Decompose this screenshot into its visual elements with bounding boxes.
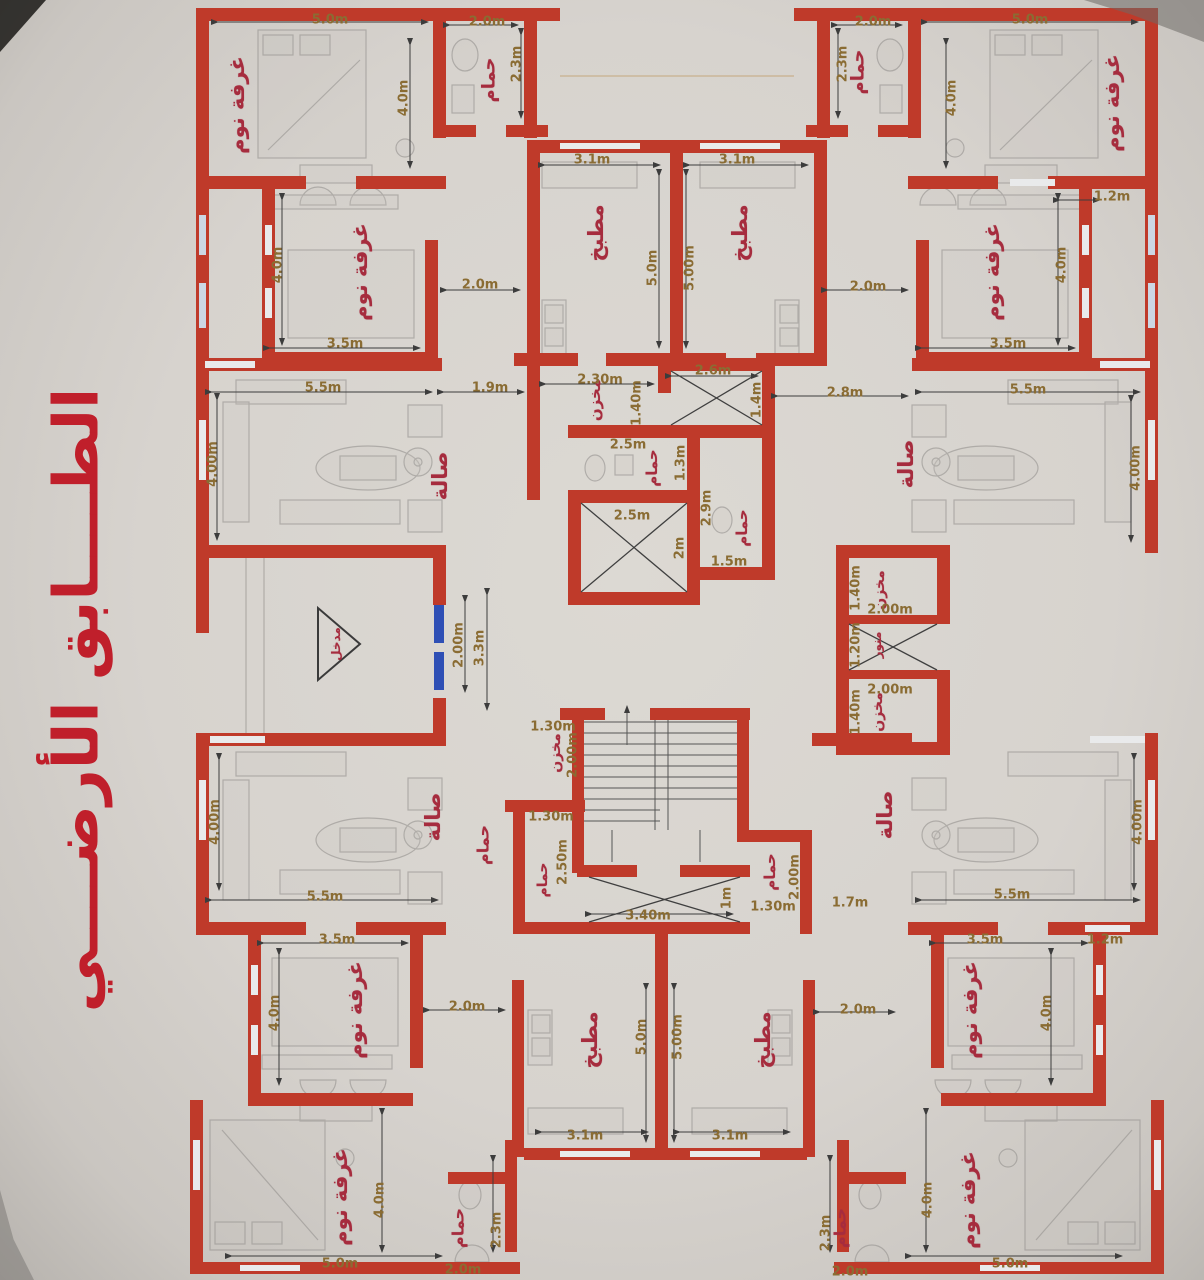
- dim-label-41: 3.3m: [473, 630, 488, 667]
- room-label-19: حمام: [535, 863, 551, 898]
- room-label-21: صالة: [421, 793, 445, 842]
- dim-label-70: 2.3m: [490, 1212, 505, 1249]
- dim-label-15: 2.0m: [850, 280, 887, 295]
- dim-label-11: 5.0m: [646, 250, 661, 287]
- room-label-23: غرفة نوم: [343, 961, 367, 1059]
- dim-label-49: 1.30m: [750, 900, 796, 915]
- dim-label-72: 2.3m: [819, 1215, 834, 1252]
- dim-label-32: 2.5m: [614, 509, 651, 524]
- dim-label-22: 1.40m: [630, 380, 645, 426]
- dim-label-33: 2m: [673, 537, 688, 560]
- floor-title: الطــــابق الأرضــــي: [40, 388, 113, 1013]
- dim-label-28: 4.00m: [1129, 445, 1144, 491]
- room-label-25: مطبخ: [578, 1011, 602, 1068]
- room-label-18: حمام: [474, 825, 493, 865]
- stairs: [584, 706, 737, 862]
- dim-label-25: 2.8m: [827, 386, 864, 401]
- photo-corner-shadow-topleft: [0, 0, 46, 52]
- dim-label-69: 5.0m: [992, 1257, 1029, 1272]
- room-label-1: حمام: [479, 58, 500, 103]
- dim-label-10: 3.1m: [719, 153, 756, 168]
- dim-label-12: 5.00m: [683, 245, 698, 291]
- room-label-8: صالة: [428, 452, 452, 501]
- dim-label-24: 1.4m: [750, 382, 765, 419]
- dim-label-51: 5.5m: [307, 890, 344, 905]
- dim-label-38: 2.00m: [867, 683, 913, 698]
- dim-label-37: 1.20m: [849, 622, 864, 668]
- room-label-17: مخزن: [548, 733, 564, 772]
- room-label-3: مطبخ: [584, 204, 608, 261]
- dim-label-30: 1.3m: [674, 445, 689, 482]
- dim-label-18: 3.5m: [990, 337, 1027, 352]
- dim-label-17: 3.5m: [327, 337, 364, 352]
- dim-label-66: 4.0m: [373, 1182, 388, 1219]
- floorplan-drawing: [0, 0, 1204, 1280]
- dim-label-19: 5.5m: [305, 381, 342, 396]
- dim-label-14: 2.0m: [462, 278, 499, 293]
- dim-label-5: 5.0m: [1012, 13, 1049, 28]
- room-label-0: غرفة نوم: [225, 56, 249, 154]
- dim-label-21: 2.30m: [577, 373, 623, 388]
- room-label-20: حمام: [761, 853, 779, 891]
- room-label-6: غرفة نوم: [1100, 54, 1124, 152]
- dim-label-55: 3.5m: [319, 933, 356, 948]
- dim-label-7: 4.0m: [945, 80, 960, 117]
- dim-label-64: 3.1m: [567, 1129, 604, 1144]
- dim-label-47: 1m: [720, 887, 735, 910]
- dim-label-6: 2.3m: [836, 46, 851, 83]
- dim-label-3: 4.0m: [397, 80, 412, 117]
- dim-label-44: 1.30m: [528, 810, 574, 825]
- dim-label-23: 2.6m: [695, 364, 732, 379]
- dim-label-9: 3.1m: [574, 153, 611, 168]
- room-label-7: غرفة نوم: [980, 223, 1004, 321]
- dim-label-36: 2.00m: [867, 603, 913, 618]
- dim-label-59: 2.0m: [449, 1000, 486, 1015]
- dim-label-45: 2.50m: [556, 839, 571, 885]
- dim-label-1: 2.0m: [469, 15, 506, 30]
- dim-label-34: 1.5m: [711, 555, 748, 570]
- dim-label-20: 1.9m: [472, 381, 509, 396]
- room-label-14: منور: [870, 632, 884, 659]
- room-label-27: غرفة نوم: [328, 1148, 352, 1246]
- dim-label-2: 2.3m: [510, 46, 525, 83]
- dim-label-68: 5.0m: [322, 1257, 359, 1272]
- room-label-28: غرفة نوم: [956, 1151, 980, 1249]
- room-label-5: حمام: [848, 50, 869, 95]
- room-label-15: مخزن: [870, 692, 886, 731]
- dim-label-56: 3.5m: [967, 933, 1004, 948]
- room-label-22: صالة: [873, 791, 897, 840]
- room-label-16: مدخل: [329, 627, 343, 661]
- dim-label-60: 2.0m: [840, 1003, 877, 1018]
- dim-label-26: 5.5m: [1010, 383, 1047, 398]
- dim-label-13: 4.0m: [271, 247, 286, 284]
- dim-label-0: 5.0m: [312, 13, 349, 28]
- dim-label-58: 4.0m: [1040, 995, 1055, 1032]
- room-label-29: حمام: [449, 1208, 468, 1248]
- room-label-2: غرفة نوم: [348, 223, 372, 321]
- dim-label-67: 4.0m: [921, 1182, 936, 1219]
- dim-label-62: 5.0m: [635, 1019, 650, 1056]
- dim-label-39: 1.40m: [849, 689, 864, 735]
- dim-label-35: 1.40m: [849, 565, 864, 611]
- dim-label-50: 1.7m: [832, 896, 869, 911]
- dim-label-57: 4.0m: [268, 995, 283, 1032]
- dim-label-54: 4.00m: [1131, 799, 1146, 845]
- room-label-12: حمام: [733, 509, 751, 547]
- dim-label-48: 2.00m: [788, 854, 803, 900]
- room-label-24: غرفة نوم: [958, 961, 982, 1059]
- entrance-door: [434, 605, 444, 690]
- dim-label-71: 2.0m: [445, 1263, 482, 1278]
- dim-label-53: 5.5m: [994, 888, 1031, 903]
- room-label-9: صالة: [894, 440, 918, 489]
- room-label-26: مطبخ: [751, 1011, 775, 1068]
- dim-label-61: 1.2m: [1087, 933, 1124, 948]
- dim-label-40: 2.00m: [452, 622, 467, 668]
- dim-label-43: 2.00m: [566, 732, 581, 778]
- dim-label-52: 4.00m: [208, 799, 223, 845]
- dim-label-73: 2.0m: [832, 1265, 869, 1280]
- dim-label-65: 3.1m: [712, 1129, 749, 1144]
- dim-label-4: 2.0m: [855, 15, 892, 30]
- room-label-11: حمام: [643, 449, 661, 487]
- dim-label-31: 2.9m: [700, 490, 715, 527]
- dim-label-16: 4.0m: [1055, 247, 1070, 284]
- dim-label-27: 4.00m: [206, 441, 221, 487]
- dim-label-63: 5.00m: [671, 1014, 686, 1060]
- dim-label-29: 2.5m: [610, 438, 647, 453]
- floor-plan-photo: الطــــابق الأرضــــي غرفة نومحمامغرفة ن…: [0, 0, 1204, 1280]
- room-label-4: مطبخ: [728, 204, 752, 261]
- dim-label-46: 3.40m: [625, 909, 671, 924]
- dim-label-8: 1.2m: [1094, 190, 1131, 205]
